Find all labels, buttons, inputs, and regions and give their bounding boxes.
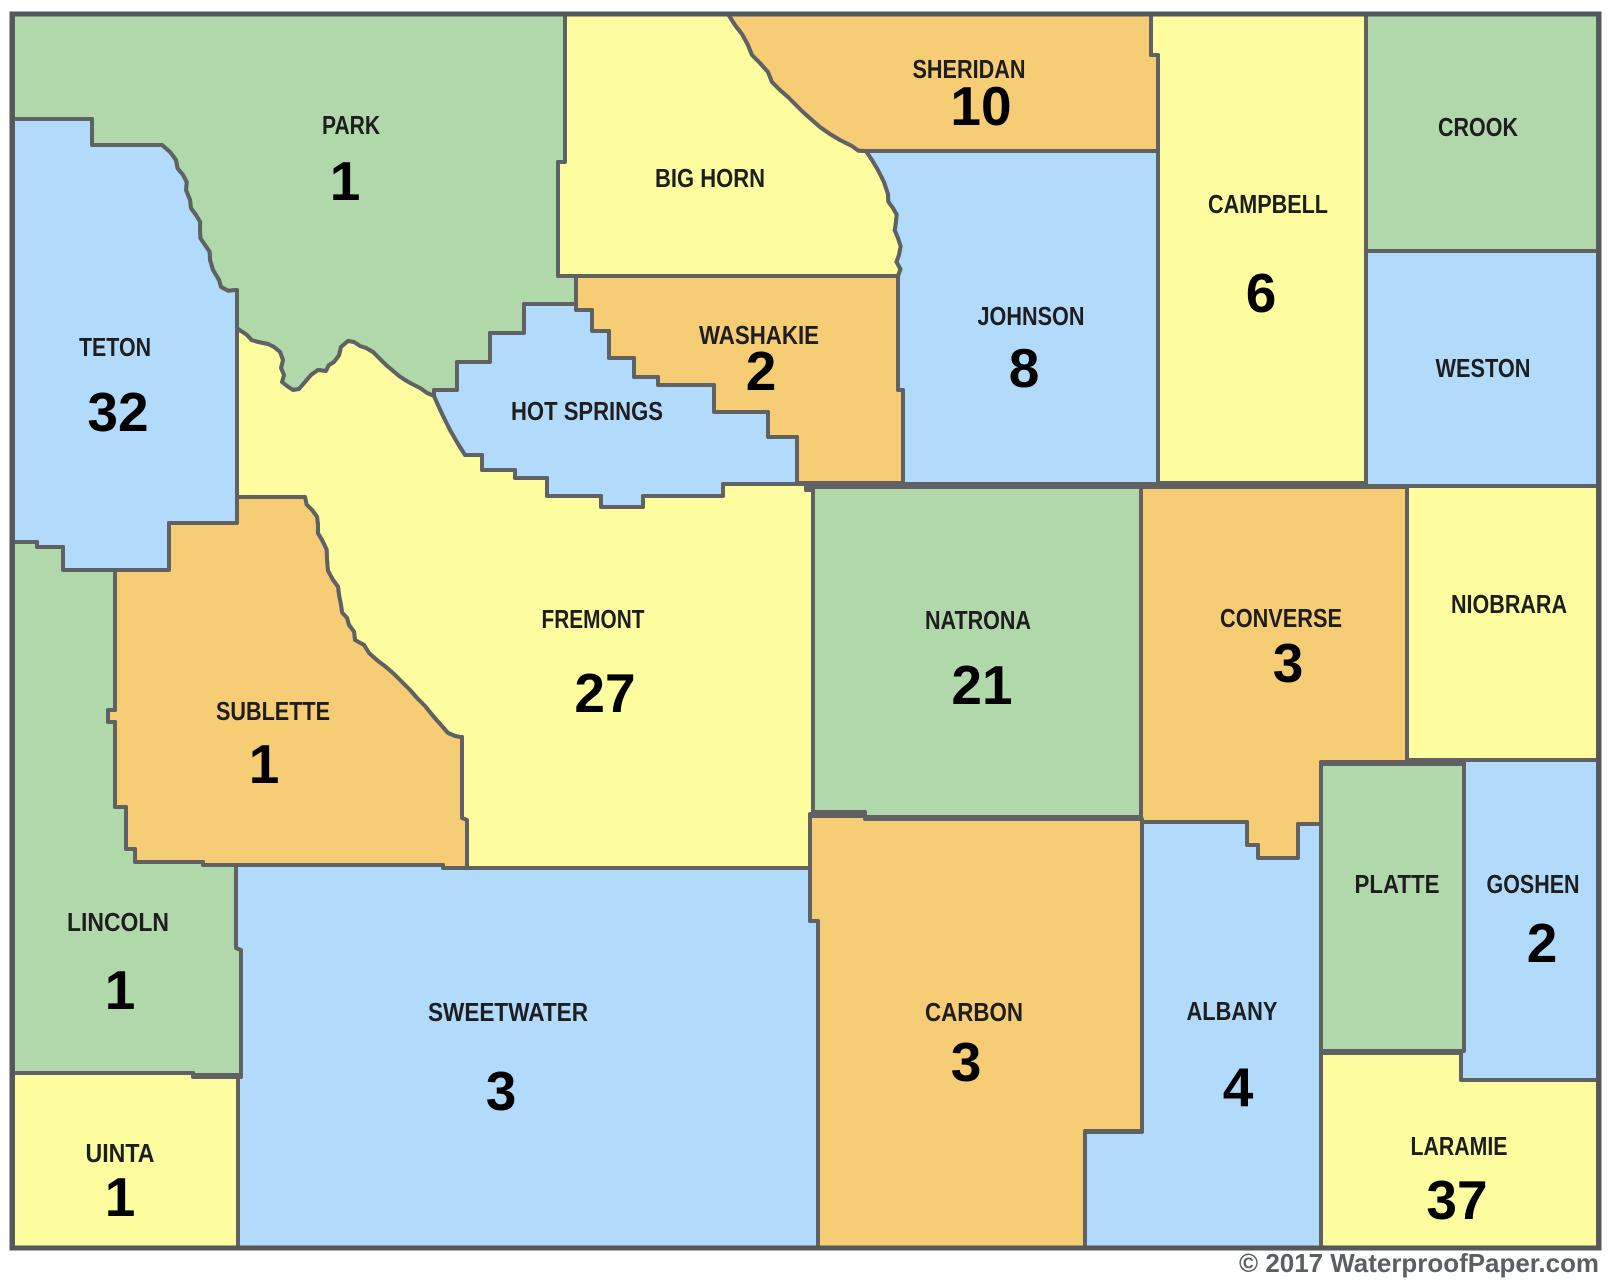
svg-text:© 2017 WaterproofPaper.com: © 2017 WaterproofPaper.com [1239, 1248, 1599, 1278]
svg-text:CAMPBELL: CAMPBELL [1208, 189, 1328, 219]
svg-text:FREMONT: FREMONT [542, 604, 645, 634]
svg-text:TETON: TETON [79, 332, 151, 362]
svg-text:CONVERSE: CONVERSE [1220, 603, 1342, 633]
svg-text:SWEETWATER: SWEETWATER [428, 997, 588, 1027]
svg-text:NIOBRARA: NIOBRARA [1451, 589, 1567, 619]
svg-text:4: 4 [1223, 1056, 1254, 1118]
svg-text:1: 1 [105, 1166, 136, 1228]
svg-text:3: 3 [486, 1060, 517, 1122]
svg-text:21: 21 [951, 654, 1012, 716]
svg-text:LINCOLN: LINCOLN [67, 907, 169, 937]
svg-text:JOHNSON: JOHNSON [978, 301, 1085, 331]
svg-text:PARK: PARK [322, 110, 380, 140]
svg-text:2: 2 [1527, 912, 1558, 974]
svg-text:CROOK: CROOK [1438, 112, 1518, 142]
svg-text:BIG HORN: BIG HORN [655, 163, 765, 193]
svg-text:UINTA: UINTA [86, 1138, 155, 1168]
svg-text:3: 3 [1273, 632, 1304, 694]
svg-text:ALBANY: ALBANY [1187, 996, 1278, 1026]
svg-text:3: 3 [951, 1031, 982, 1093]
svg-text:1: 1 [330, 150, 361, 212]
svg-text:NATRONA: NATRONA [925, 605, 1031, 635]
svg-text:6: 6 [1246, 262, 1277, 324]
svg-text:CARBON: CARBON [925, 997, 1023, 1027]
svg-text:32: 32 [87, 381, 148, 443]
svg-text:1: 1 [105, 959, 136, 1021]
svg-text:GOSHEN: GOSHEN [1487, 869, 1580, 899]
svg-text:PLATTE: PLATTE [1355, 869, 1440, 899]
svg-text:LARAMIE: LARAMIE [1411, 1131, 1508, 1161]
svg-text:2: 2 [746, 340, 777, 402]
svg-text:SUBLETTE: SUBLETTE [216, 696, 330, 726]
svg-text:10: 10 [950, 75, 1011, 137]
svg-text:WESTON: WESTON [1436, 353, 1531, 383]
svg-text:8: 8 [1009, 337, 1040, 399]
svg-text:1: 1 [249, 733, 280, 795]
svg-text:27: 27 [574, 662, 635, 724]
svg-text:37: 37 [1426, 1169, 1487, 1231]
svg-text:HOT SPRINGS: HOT SPRINGS [511, 396, 663, 426]
